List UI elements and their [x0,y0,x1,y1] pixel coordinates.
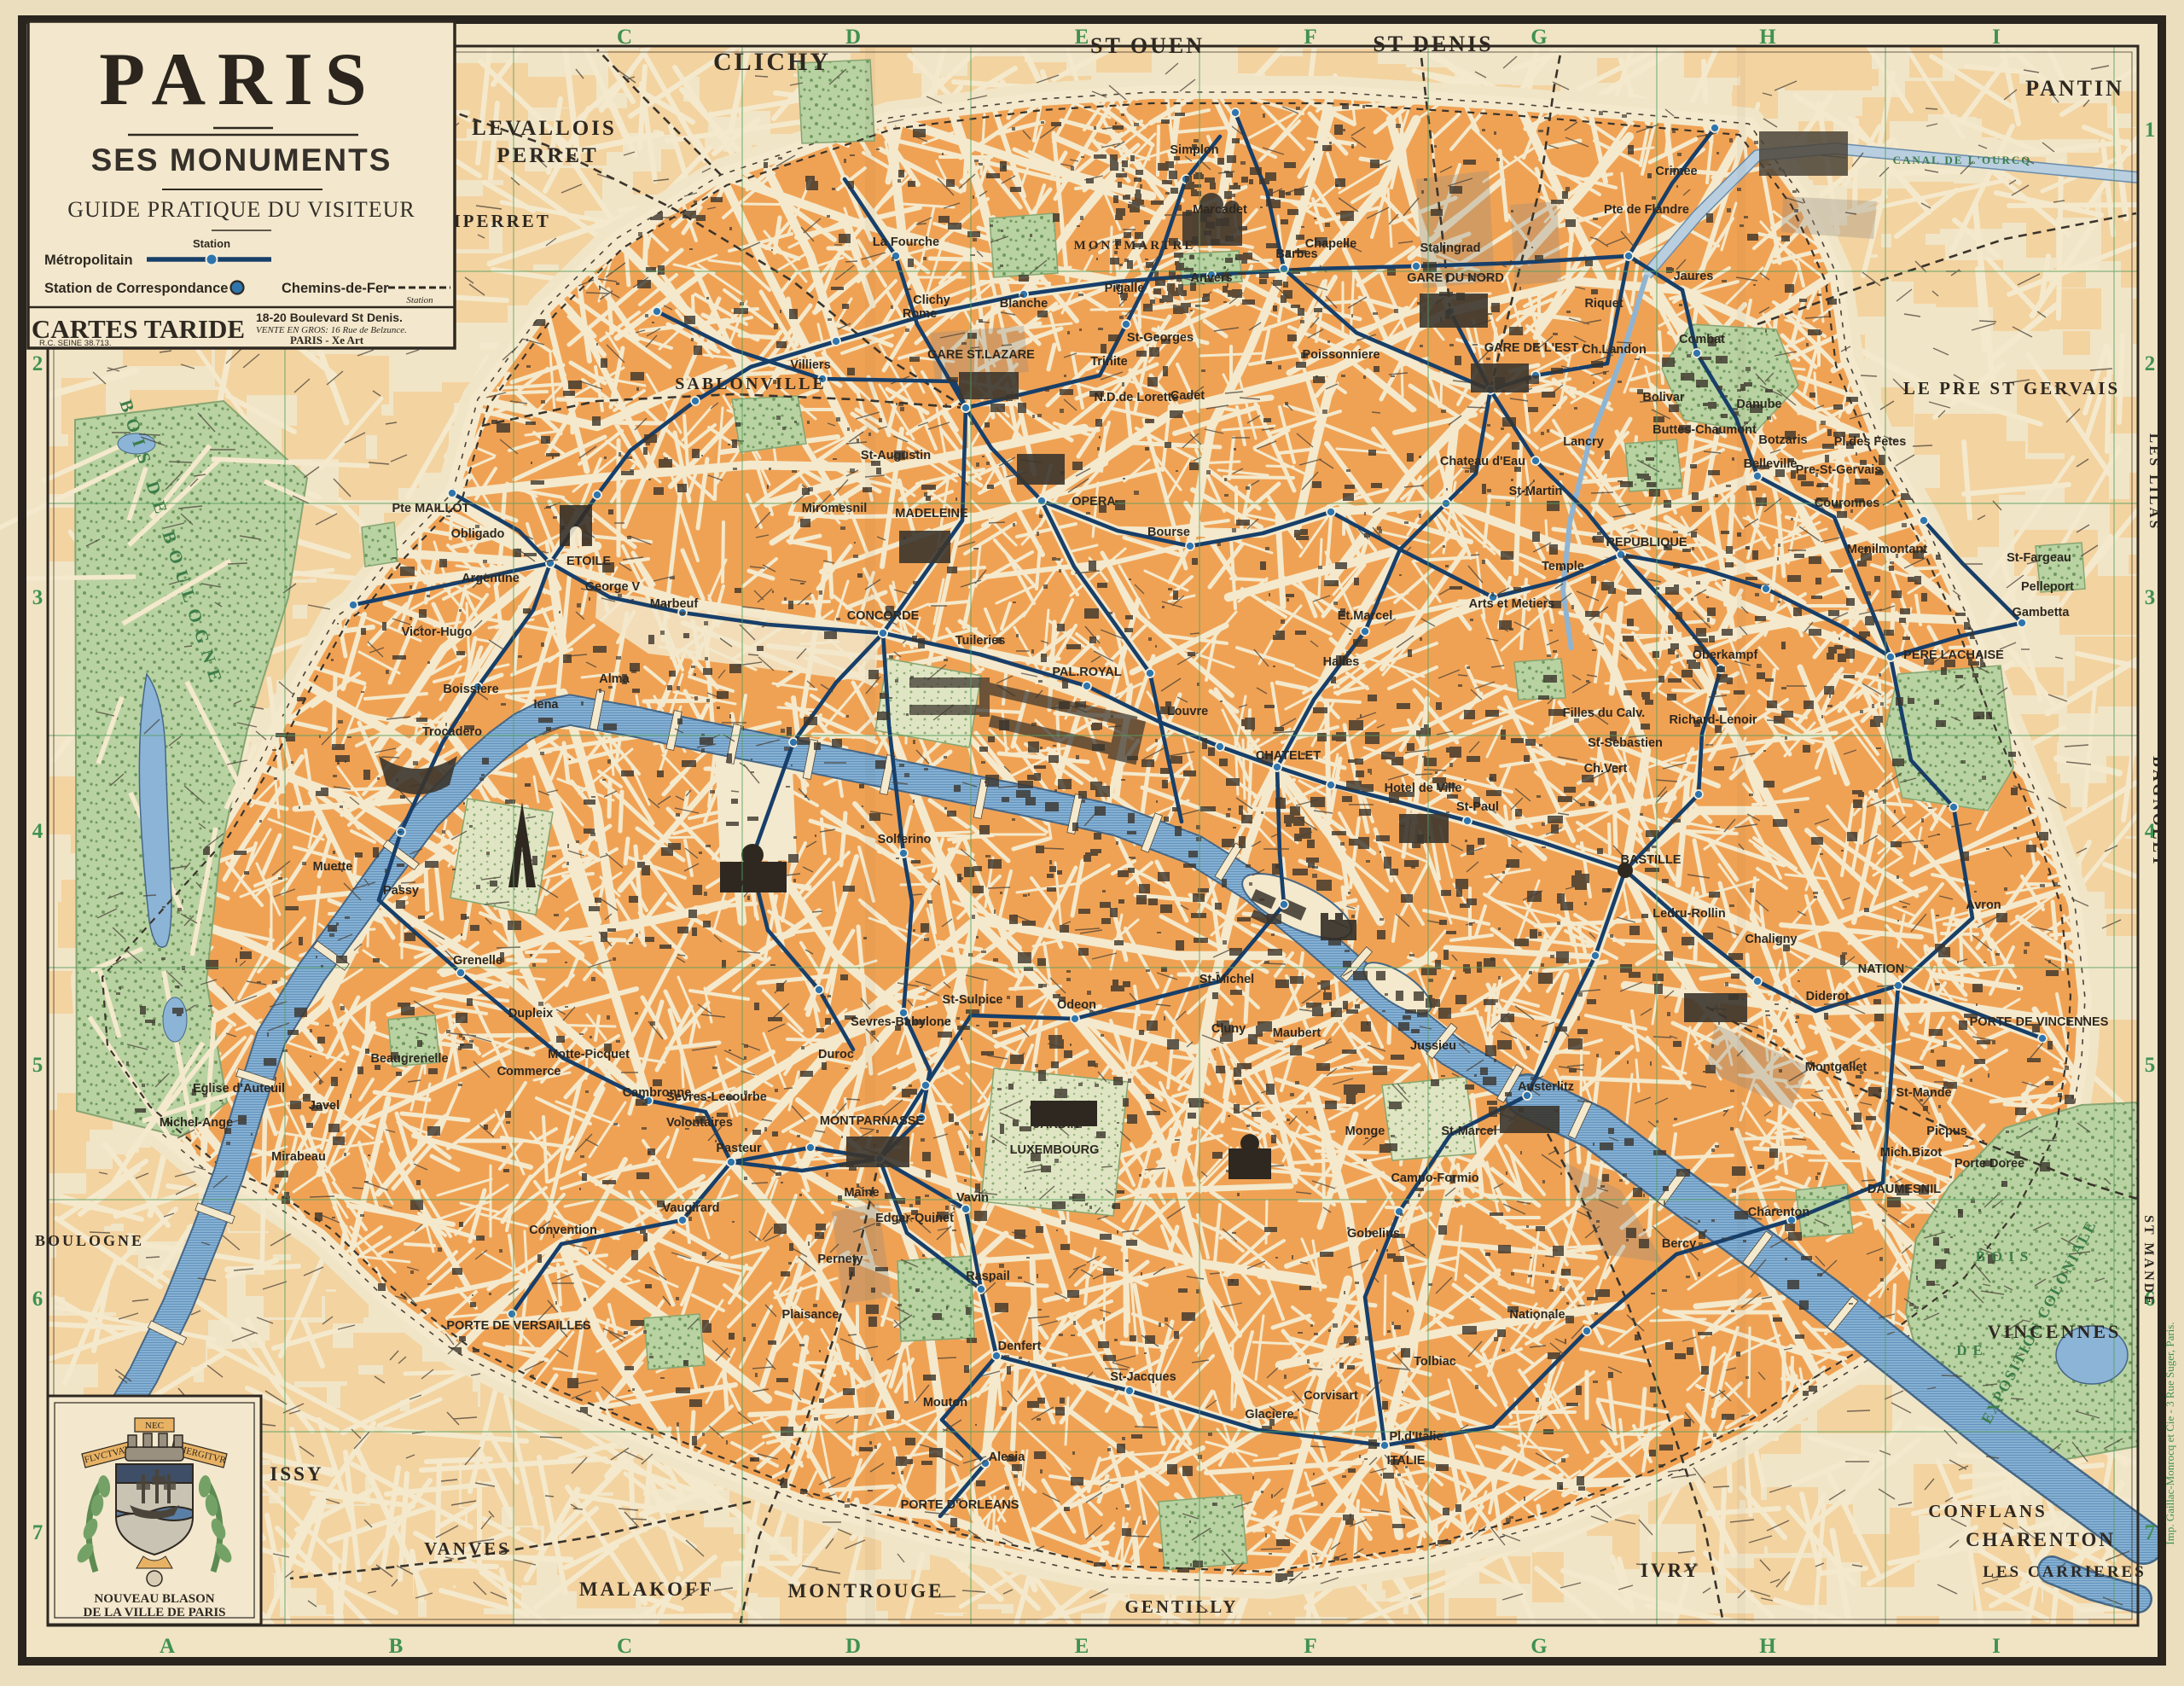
svg-text:Volontaires: Volontaires [666,1116,733,1130]
svg-text:DAUMESNIL: DAUMESNIL [1867,1183,1941,1196]
svg-text:PORTE D'ORLEANS: PORTE D'ORLEANS [901,1498,1019,1512]
svg-text:Nationale: Nationale [1509,1308,1565,1322]
svg-text:Station: Station [193,237,230,250]
svg-text:St-Mande: St-Mande [1896,1086,1951,1100]
svg-text:MONTROUGE: MONTROUGE [788,1580,944,1602]
svg-text:St-Augustin: St-Augustin [861,449,931,462]
svg-text:A: A [160,1635,175,1658]
svg-text:Temple: Temple [1542,560,1584,573]
svg-text:GARE ST.LAZARE: GARE ST.LAZARE [927,348,1035,362]
svg-text:Michel-Ange: Michel-Ange [160,1116,233,1130]
svg-text:Buttes-Chaumont: Buttes-Chaumont [1653,423,1757,437]
svg-text:1: 1 [2145,119,2156,142]
svg-text:Marcadet: Marcadet [1193,203,1247,217]
svg-text:Menilmontant: Menilmontant [1847,543,1927,556]
svg-text:GARE DU NORD: GARE DU NORD [1407,271,1504,285]
svg-text:BOULOGNE: BOULOGNE [35,1232,144,1249]
svg-text:Rome: Rome [903,307,937,321]
svg-text:SES MONUMENTS: SES MONUMENTS [91,142,392,177]
svg-text:PERE LACHAISE: PERE LACHAISE [1903,648,2004,662]
svg-text:Richard-Lenoir: Richard-Lenoir [1669,713,1757,727]
svg-text:Hotel de Ville: Hotel de Ville [1385,782,1462,795]
svg-text:NATION: NATION [1858,962,1905,976]
svg-text:3: 3 [2145,586,2156,609]
svg-text:MALAKOFF: MALAKOFF [579,1578,714,1600]
svg-text:Imp. Gaillac-Monrocq et Cie -: Imp. Gaillac-Monrocq et Cie - 3 Rue Suge… [2164,1322,2176,1544]
svg-text:Pre-St-Gervais: Pre-St-Gervais [1796,463,1882,477]
svg-text:ETOILE: ETOILE [566,555,611,568]
svg-text:Vavin: Vavin [956,1191,989,1205]
svg-text:Charenton: Charenton [1748,1206,1810,1219]
svg-text:E: E [1075,1635,1089,1658]
svg-text:Raspail: Raspail [966,1270,1010,1283]
svg-text:Mich.Bizot: Mich.Bizot [1880,1146,1943,1160]
svg-text:Trocadero: Trocadero [422,725,482,739]
svg-text:St-Sulpice: St-Sulpice [943,993,1003,1007]
svg-text:GARE DE L'EST: GARE DE L'EST [1484,341,1579,355]
svg-text:St-Paul: St-Paul [1456,800,1499,814]
svg-text:Et.Marcel: Et.Marcel [1338,609,1392,623]
svg-text:Chemins-de-Fer: Chemins-de-Fer [282,281,389,296]
svg-text:VANVES: VANVES [424,1538,511,1559]
svg-text:Obligado: Obligado [451,527,505,541]
svg-text:LE PRE ST GERVAIS: LE PRE ST GERVAIS [1903,378,2120,398]
svg-text:C: C [617,1635,632,1658]
svg-text:4: 4 [32,820,44,843]
svg-text:Diderot: Diderot [1806,990,1850,1003]
svg-text:I: I [1992,1635,2001,1658]
svg-text:Grenelle: Grenelle [453,954,502,968]
svg-text:Commerce: Commerce [497,1065,561,1078]
svg-text:GENTILLY: GENTILLY [1125,1596,1239,1617]
svg-text:Ch.Landon: Ch.Landon [1582,343,1647,357]
svg-text:Villiers: Villiers [790,358,830,372]
svg-text:ITALIE: ITALIE [1387,1454,1426,1468]
svg-text:LUXEMBOURG: LUXEMBOURG [1010,1143,1100,1157]
svg-text:Métropolitain: Métropolitain [44,253,133,268]
svg-text:Pte MAILLOT: Pte MAILLOT [392,502,469,515]
svg-text:Sevres-Babylone: Sevres-Babylone [851,1015,951,1029]
svg-text:Beaugrenelle: Beaugrenelle [370,1052,448,1066]
svg-text:Pl.d'Italie: Pl.d'Italie [1389,1430,1443,1444]
svg-text:PARIS - Xe Art: PARIS - Xe Art [290,334,364,346]
svg-text:CONFLANS: CONFLANS [1928,1501,2047,1521]
svg-text:R.C. SEINE 38.713.: R.C. SEINE 38.713. [39,339,111,348]
svg-text:B: B [389,1635,404,1658]
svg-text:Pelleport: Pelleport [2021,580,2074,594]
svg-text:N.D.de Lorette: N.D.de Lorette [1094,391,1178,404]
svg-text:Montgallet: Montgallet [1805,1061,1867,1074]
svg-text:Miromesnil: Miromesnil [802,502,868,515]
svg-text:DE LA VILLE DE PARIS: DE LA VILLE DE PARIS [84,1606,226,1619]
svg-text:F: F [1304,1635,1316,1658]
svg-text:Ch.Vert: Ch.Vert [1584,762,1628,776]
svg-text:Solferino: Solferino [878,833,932,846]
svg-text:Motte-Picquet: Motte-Picquet [548,1048,630,1061]
svg-text:Stalingrad: Stalingrad [1420,241,1481,255]
svg-text:BASTILLE: BASTILLE [1621,853,1682,867]
svg-text:Monge: Monge [1345,1125,1385,1138]
svg-text:LES CARRIERES: LES CARRIERES [1983,1563,2146,1581]
svg-text:LEVALLOIS: LEVALLOIS [472,117,617,140]
svg-text:Poissonniere: Poissonniere [1302,348,1380,362]
svg-text:Halles: Halles [1323,655,1360,669]
svg-text:Javel: Javel [309,1099,340,1113]
svg-text:Convention: Convention [529,1224,597,1237]
svg-text:MONTPARNASSE: MONTPARNASSE [820,1114,925,1128]
svg-text:VINCENNES: VINCENNES [1988,1321,2122,1342]
svg-text:Riquet: Riquet [1584,297,1623,311]
svg-text:Odeon: Odeon [1057,998,1096,1012]
svg-text:Passy: Passy [383,884,419,898]
svg-text:Glaciere: Glaciere [1245,1408,1293,1421]
svg-text:George V: George V [585,580,641,594]
svg-text:6: 6 [32,1288,44,1311]
svg-text:Edgar-Quinet: Edgar-Quinet [875,1212,954,1225]
svg-text:Botzaris: Botzaris [1758,433,1807,447]
svg-text:Victor-Hugo: Victor-Hugo [402,625,473,639]
svg-text:PORTE DE VINCENNES: PORTE DE VINCENNES [1970,1015,2109,1029]
svg-text:Cambronne: Cambronne [623,1086,692,1100]
svg-text:Maubert: Maubert [1273,1026,1321,1040]
svg-text:Trinite: Trinite [1090,355,1128,369]
svg-text:REPUBLIQUE: REPUBLIQUE [1606,536,1687,549]
svg-text:SABLONVILLE: SABLONVILLE [675,375,827,393]
svg-text:Station de Correspondance: Station de Correspondance [44,281,228,296]
svg-text:Cadet: Cadet [1170,389,1205,403]
svg-text:Chateau d'Eau: Chateau d'Eau [1440,455,1525,468]
svg-text:Invalides: Invalides [726,877,779,891]
svg-text:Avron: Avron [1966,898,2001,912]
svg-text:Campo-Formio: Campo-Formio [1391,1171,1478,1185]
svg-text:NEC: NEC [145,1421,164,1431]
svg-text:Vaugirard: Vaugirard [663,1201,720,1215]
svg-text:Dupleix: Dupleix [508,1007,553,1020]
svg-text:D: D [845,1635,861,1658]
svg-text:OPERA: OPERA [1072,495,1116,509]
svg-text:Couronnes: Couronnes [1815,497,1880,510]
svg-text:DE: DE [1956,1342,1989,1358]
svg-text:Iena: Iena [533,698,559,712]
svg-text:Chaligny: Chaligny [1745,933,1797,946]
svg-text:Plaisance: Plaisance [782,1308,839,1322]
svg-text:St-Sebastien: St-Sebastien [1588,736,1663,750]
svg-text:Mouton: Mouton [923,1396,967,1410]
svg-text:18-20 Boulevard St Denis.: 18-20 Boulevard St Denis. [256,311,403,324]
svg-text:Denfert: Denfert [998,1340,1042,1353]
svg-text:Corvisart: Corvisart [1304,1389,1358,1403]
svg-text:BOIS: BOIS [1976,1248,2035,1264]
svg-text:PARIS: PARIS [99,38,379,121]
svg-text:Clichy: Clichy [913,294,950,307]
svg-text:Muette: Muette [313,860,353,874]
svg-text:Pigalle: Pigalle [1105,282,1145,295]
svg-text:NOUVEAU BLASON: NOUVEAU BLASON [94,1592,214,1606]
svg-text:Eglise d'Auteuil: Eglise d'Auteuil [193,1082,285,1096]
svg-text:Arts et Metiers: Arts et Metiers [1469,597,1555,611]
svg-text:Picpus: Picpus [1926,1125,1967,1138]
svg-text:PANTIN: PANTIN [2025,76,2124,101]
svg-text:Crimee: Crimee [1655,165,1697,178]
svg-text:Argentine: Argentine [462,572,520,585]
svg-text:ST MANDE: ST MANDE [2141,1215,2156,1307]
svg-text:CHATELET: CHATELET [1256,749,1321,763]
svg-text:Pte de Flandre: Pte de Flandre [1604,203,1689,217]
svg-text:Alma: Alma [599,672,630,686]
svg-text:7: 7 [32,1521,44,1544]
svg-text:Porte Doree: Porte Doree [1955,1157,2024,1171]
svg-text:Boissiere: Boissiere [443,683,498,696]
svg-text:7: 7 [2145,1521,2156,1544]
svg-text:2: 2 [32,352,44,375]
svg-text:Tuileries: Tuileries [955,634,1006,648]
svg-text:PORTE DE VERSAILLES: PORTE DE VERSAILLES [446,1319,591,1333]
svg-text:St-Martin: St-Martin [1509,485,1563,498]
svg-text:Blanche: Blanche [1000,297,1048,311]
svg-text:JARDIN: JARDIN [1033,1118,1079,1131]
svg-text:ST DENIS: ST DENIS [1373,32,1493,56]
svg-text:St-Fargeau: St-Fargeau [2007,551,2071,565]
svg-text:Anvers: Anvers [1190,271,1232,285]
svg-text:5: 5 [2145,1054,2156,1077]
svg-text:Combat: Combat [1679,333,1725,346]
svg-text:Maine: Maine [844,1186,879,1200]
svg-text:Jaures: Jaures [1674,270,1714,283]
svg-text:CANAL DE L'OURCQ: CANAL DE L'OURCQ [1893,154,2032,166]
svg-text:MADELEINE: MADELEINE [895,507,968,520]
svg-text:Danube: Danube [1736,398,1781,411]
svg-text:Simplon: Simplon [1170,143,1218,157]
svg-text:PERRET: PERRET [497,144,598,167]
svg-text:Belleville: Belleville [1744,457,1798,471]
svg-text:GUIDE PRATIQUE DU VISITEUR: GUIDE PRATIQUE DU VISITEUR [67,197,415,222]
svg-text:PAL.ROYAL: PAL.ROYAL [1052,666,1122,679]
svg-text:Mirabeau: Mirabeau [271,1150,326,1164]
svg-text:Station: Station [406,295,433,305]
svg-text:Tolbiac: Tolbiac [1414,1355,1456,1369]
svg-text:Pasteur: Pasteur [716,1142,762,1155]
svg-text:2: 2 [2145,352,2156,375]
svg-text:ISSY: ISSY [270,1463,323,1485]
svg-text:Marbeuf: Marbeuf [650,597,699,611]
svg-text:Oberkampf: Oberkampf [1693,648,1758,662]
svg-text:Jussieu: Jussieu [1410,1039,1456,1053]
svg-text:Filles du Calv.: Filles du Calv. [1563,706,1645,720]
svg-text:St-Marcel: St-Marcel [1441,1125,1496,1138]
svg-text:CHARENTON: CHARENTON [1966,1529,2116,1550]
svg-text:3: 3 [32,586,44,609]
svg-text:Ledru-Rollin: Ledru-Rollin [1653,907,1725,921]
svg-text:Louvre: Louvre [1167,705,1208,718]
svg-text:La Fourche: La Fourche [873,235,939,249]
svg-text:Gobelins: Gobelins [1347,1227,1400,1241]
svg-text:H: H [1759,1635,1776,1658]
svg-text:St-Michel: St-Michel [1199,973,1254,986]
svg-text:MONTMARTRE: MONTMARTRE [1074,239,1196,253]
svg-text:Gambetta: Gambetta [2013,606,2071,619]
svg-text:Bercy: Bercy [1662,1237,1696,1251]
svg-text:Austerlitz: Austerlitz [1518,1080,1574,1094]
svg-text:5: 5 [32,1054,44,1077]
svg-text:IVRY: IVRY [1641,1560,1700,1581]
svg-text:Bolivar: Bolivar [1642,391,1685,404]
svg-text:St-Georges: St-Georges [1127,331,1194,345]
svg-text:Pernety: Pernety [817,1253,863,1266]
svg-text:CONCORDE: CONCORDE [847,609,920,623]
svg-text:Pl.des Fetes: Pl.des Fetes [1834,435,1907,449]
svg-text:St-Jacques: St-Jacques [1110,1370,1176,1384]
svg-text:Chapelle: Chapelle [1305,237,1356,251]
svg-text:Cluny: Cluny [1211,1022,1246,1036]
svg-text:G: G [1531,1635,1547,1658]
svg-text:Lancry: Lancry [1563,435,1604,449]
svg-text:Duroc: Duroc [818,1048,854,1061]
svg-text:Alesia: Alesia [989,1451,1026,1464]
svg-text:Bourse: Bourse [1147,526,1190,539]
